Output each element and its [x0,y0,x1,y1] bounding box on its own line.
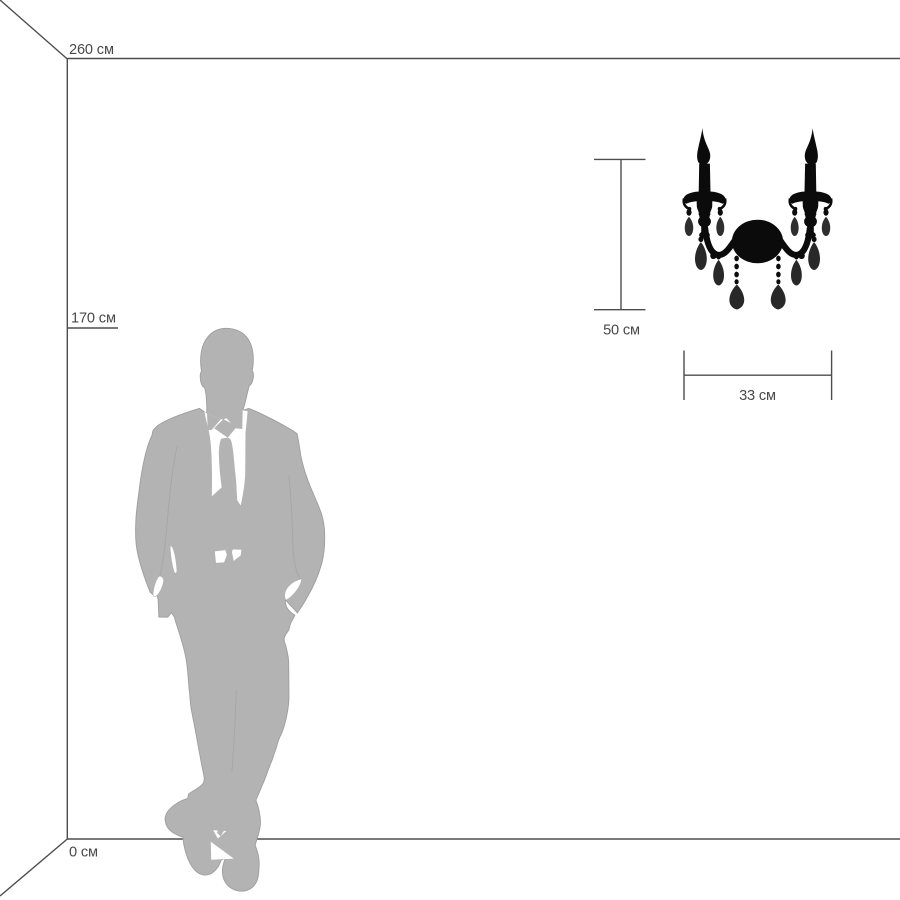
svg-text:260 см: 260 см [69,42,114,58]
svg-text:0 см: 0 см [69,845,98,861]
svg-text:33 см: 33 см [739,388,776,404]
svg-text:170 см: 170 см [71,311,116,327]
svg-text:50 см: 50 см [603,323,640,339]
